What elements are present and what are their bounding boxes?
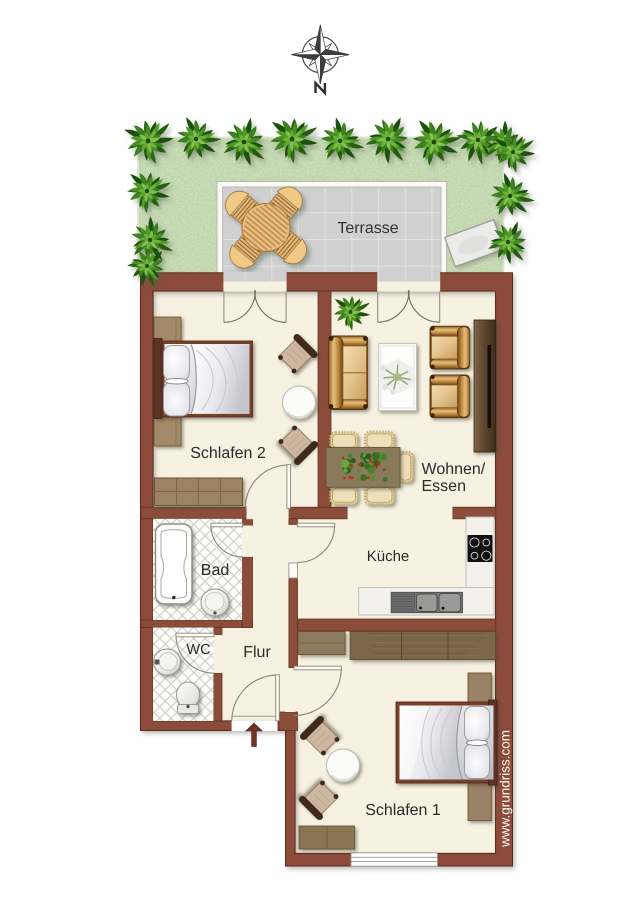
svg-text:Schlafen 2: Schlafen 2 bbox=[190, 445, 266, 462]
svg-text:Wohnen/: Wohnen/ bbox=[422, 461, 486, 478]
svg-text:Terrasse: Terrasse bbox=[337, 220, 398, 237]
svg-text:WC: WC bbox=[186, 642, 210, 658]
svg-text:Bad: Bad bbox=[201, 562, 229, 579]
svg-text:Schlafen 1: Schlafen 1 bbox=[365, 802, 441, 819]
svg-text:Essen: Essen bbox=[422, 478, 466, 495]
svg-text:Küche: Küche bbox=[367, 548, 410, 565]
svg-text:www.grundriss.com: www.grundriss.com bbox=[498, 730, 513, 848]
svg-text:Flur: Flur bbox=[243, 644, 271, 661]
